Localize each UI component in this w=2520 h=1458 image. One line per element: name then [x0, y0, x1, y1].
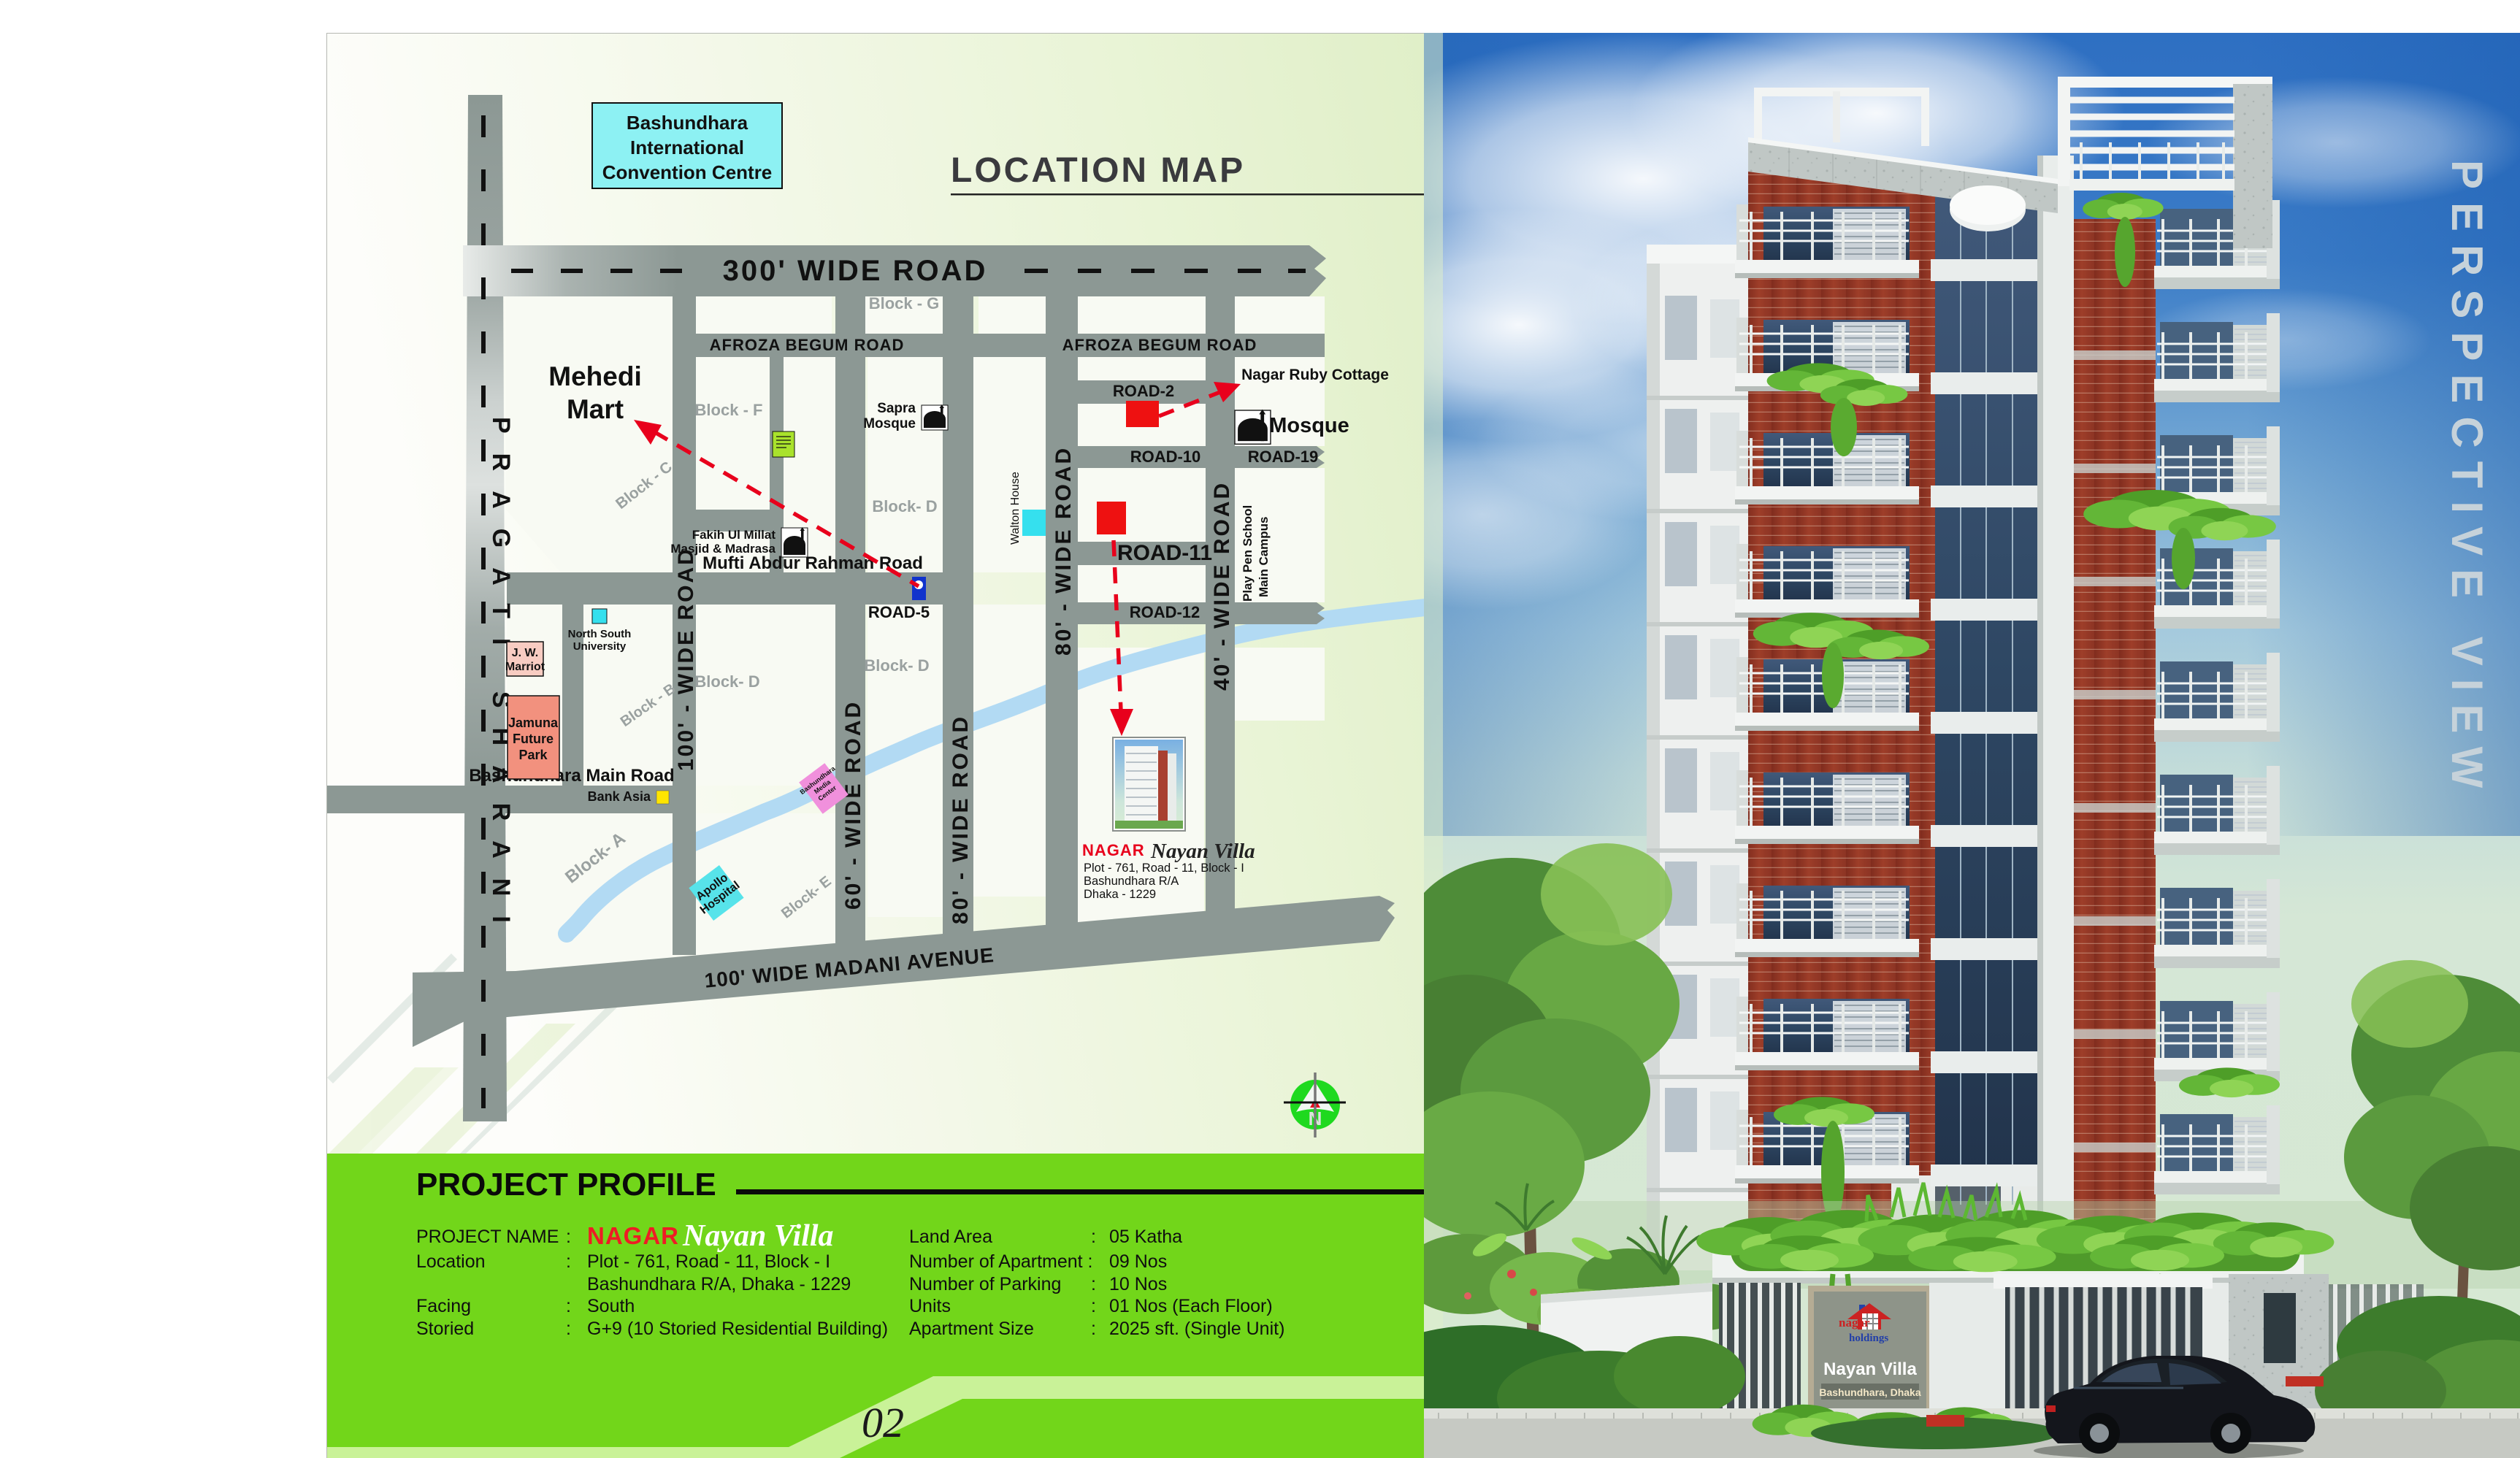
svg-text:10 Nos: 10 Nos [1109, 1274, 1167, 1294]
svg-text:AFROZA BEGUM ROAD: AFROZA BEGUM ROAD [1062, 336, 1257, 354]
svg-text::: : [566, 1227, 571, 1247]
svg-text:Storied: Storied [416, 1319, 474, 1339]
svg-text:Dhaka - 1229: Dhaka - 1229 [1084, 888, 1156, 901]
svg-text::: : [566, 1251, 571, 1272]
svg-text:Block - G: Block - G [869, 294, 940, 312]
svg-text:40' - WIDE ROAD: 40' - WIDE ROAD [1210, 481, 1234, 691]
svg-text:NAGAR: NAGAR [587, 1222, 679, 1249]
svg-text:Bashundhara Main Road: Bashundhara Main Road [469, 766, 674, 786]
svg-text:Land Area: Land Area [909, 1227, 992, 1247]
svg-text:Bashundhara R/A, Dhaka - 1229: Bashundhara R/A, Dhaka - 1229 [587, 1274, 851, 1294]
svg-text:Fakih Ul Millat: Fakih Ul Millat [692, 528, 776, 542]
svg-text:Walton House: Walton House [1009, 472, 1022, 545]
svg-text:80' - WIDE ROAD: 80' - WIDE ROAD [1052, 446, 1076, 656]
svg-text:North South: North South [568, 628, 632, 640]
svg-text:Mart: Mart [567, 394, 624, 424]
svg-text:NAGAR: NAGAR [1082, 841, 1145, 859]
svg-text:Bashundhara R/A: Bashundhara R/A [1084, 875, 1179, 888]
svg-text:PRAGATI SHARANI: PRAGATI SHARANI [487, 417, 515, 943]
svg-text:Nayan Villa: Nayan Villa [1823, 1359, 1917, 1379]
svg-text:300' WIDE ROAD: 300' WIDE ROAD [723, 255, 988, 287]
svg-text:01 Nos (Each Floor): 01 Nos (Each Floor) [1109, 1296, 1273, 1316]
svg-text:ROAD-19: ROAD-19 [1248, 448, 1319, 466]
svg-text:AFROZA BEGUM ROAD: AFROZA BEGUM ROAD [710, 336, 905, 354]
svg-text::: : [1091, 1296, 1096, 1316]
svg-text:Play Pen School: Play Pen School [1241, 505, 1255, 602]
svg-text:G+9 (10 Storied Residential Bu: G+9 (10 Storied Residential Building) [587, 1319, 888, 1339]
svg-text:Block - F: Block - F [695, 401, 763, 419]
svg-text:University: University [573, 640, 627, 653]
svg-text:holdings: holdings [1849, 1332, 1888, 1344]
svg-text:South: South [587, 1296, 635, 1316]
svg-text::: : [1091, 1274, 1096, 1294]
svg-text:Block- D: Block- D [864, 656, 929, 675]
svg-text::: : [1091, 1227, 1096, 1247]
svg-text:PROJECT PROFILE: PROJECT PROFILE [416, 1167, 716, 1202]
svg-text:2025 sft. (Single Unit): 2025 sft. (Single Unit) [1109, 1319, 1284, 1339]
svg-text:J. W.: J. W. [512, 647, 538, 659]
svg-text:Bashundhara, Dhaka: Bashundhara, Dhaka [1819, 1386, 1920, 1398]
svg-text:Nayan Villa: Nayan Villa [1150, 840, 1255, 863]
svg-text:Nagar Ruby Cottage: Nagar Ruby Cottage [1241, 367, 1389, 383]
svg-text:Mosque: Mosque [1269, 414, 1349, 437]
svg-text:Facing: Facing [416, 1296, 471, 1316]
svg-text:Jamuna: Jamuna [508, 715, 559, 730]
svg-text:Number of Apartment :: Number of Apartment : [909, 1251, 1093, 1272]
svg-text:Nayan Villa: Nayan Villa [682, 1219, 834, 1253]
svg-text::: : [1091, 1319, 1096, 1339]
svg-text:Park: Park [518, 748, 548, 762]
svg-text:ROAD-11: ROAD-11 [1117, 541, 1212, 565]
svg-text:PROJECT NAME: PROJECT NAME [416, 1227, 559, 1247]
svg-text:Apartment Size: Apartment Size [909, 1319, 1034, 1339]
svg-text:Mehedi: Mehedi [548, 361, 641, 391]
svg-text:Plot - 761, Road - 11, Block -: Plot - 761, Road - 11, Block - I [587, 1251, 830, 1272]
svg-text:ROAD-5: ROAD-5 [868, 603, 930, 621]
svg-text:Marriot: Marriot [505, 661, 545, 673]
svg-text::: : [566, 1319, 571, 1339]
svg-text:Mosque: Mosque [863, 416, 916, 431]
svg-text:02: 02 [862, 1399, 904, 1446]
svg-text:Future: Future [513, 732, 554, 746]
svg-text:Bank Asia: Bank Asia [588, 789, 651, 804]
svg-text:05 Katha: 05 Katha [1109, 1227, 1182, 1247]
svg-text:Block- D: Block- D [872, 497, 937, 515]
svg-text:60' - WIDE ROAD: 60' - WIDE ROAD [841, 700, 865, 910]
svg-text:Units: Units [909, 1296, 951, 1316]
svg-text:Bashundhara: Bashundhara [627, 112, 748, 134]
svg-text:ROAD-2: ROAD-2 [1113, 382, 1174, 400]
svg-text:Number of Parking: Number of Parking [909, 1274, 1061, 1294]
svg-text:Masjid & Madrasa: Masjid & Madrasa [670, 542, 775, 556]
svg-text:Main Campus: Main Campus [1257, 516, 1271, 597]
svg-text:Block- D: Block- D [694, 672, 759, 691]
svg-text:09 Nos: 09 Nos [1109, 1251, 1167, 1272]
svg-text:Sapra: Sapra [877, 401, 916, 416]
svg-text:nagar: nagar [1839, 1316, 1870, 1330]
svg-text:PERSPECTIVE VIEW: PERSPECTIVE VIEW [2443, 160, 2492, 801]
svg-text:International: International [630, 137, 744, 158]
svg-text:ROAD-10: ROAD-10 [1130, 448, 1201, 466]
svg-text:Location: Location [416, 1251, 486, 1272]
svg-text:Convention Centre: Convention Centre [602, 161, 773, 183]
svg-text:ROAD-12: ROAD-12 [1130, 603, 1200, 621]
svg-text:100' - WIDE ROAD: 100' - WIDE ROAD [674, 547, 698, 771]
svg-text:LOCATION MAP: LOCATION MAP [951, 151, 1245, 190]
svg-text:Plot - 761, Road - 11, Block -: Plot - 761, Road - 11, Block - I [1084, 862, 1244, 875]
svg-text::: : [566, 1296, 571, 1316]
svg-text:80' - WIDE ROAD: 80' - WIDE ROAD [949, 715, 973, 924]
